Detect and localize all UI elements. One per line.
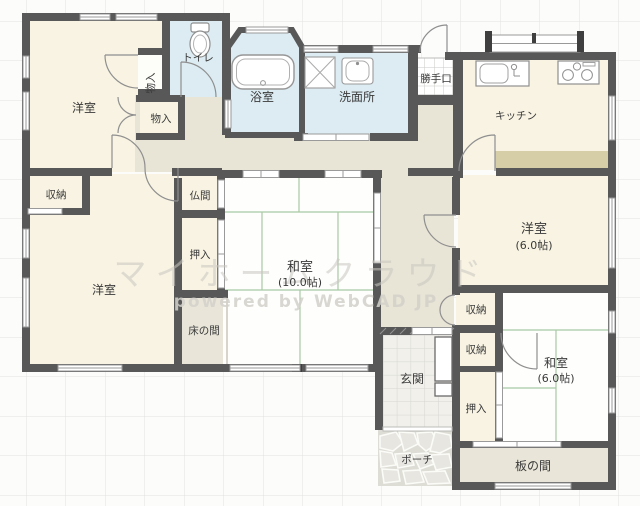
label-itanoma: 板の間: [515, 459, 551, 473]
label-washitsu10: 和室: [287, 259, 313, 275]
label-yoshitsu-right: 洋室: [521, 221, 547, 237]
label-washitsu6-size: (6.0帖): [537, 372, 574, 385]
watermark-line2: powered by WebCAD JP: [174, 292, 439, 312]
label-bath: 浴室: [250, 89, 274, 104]
kitchen-sink-icon: [476, 61, 529, 86]
label-toilet: トイレ: [182, 52, 214, 64]
label-oshiire-left: 押入: [190, 248, 211, 261]
label-kitchen: キッチン: [495, 110, 537, 122]
wash-basin-icon: [342, 58, 373, 84]
label-shuno-r1: 収納: [466, 303, 487, 316]
label-tokonoma: 床の間: [188, 324, 220, 337]
label-butsuma: 仏間: [190, 190, 211, 202]
bathtub-icon: [232, 55, 294, 89]
stove-icon: [558, 61, 599, 84]
washing-machine-icon: [305, 57, 335, 88]
label-washitsu6: 和室: [544, 355, 568, 370]
label-oshiire-right: 押入: [466, 402, 487, 415]
label-yoshitsu-right-size: (6.0帖): [515, 239, 552, 252]
label-washitsu10-size: (10.0帖): [278, 276, 322, 289]
label-yoshitsu-top-left: 洋室: [72, 100, 96, 115]
label-katteguchi: 勝手口: [420, 72, 452, 85]
label-monoire-vertical: 物入: [144, 72, 157, 93]
label-yoshitsu-bottom-left: 洋室: [92, 282, 116, 297]
kitchen-counter: [495, 151, 608, 169]
label-monoire: 物入: [151, 112, 172, 125]
label-genkan: 玄関: [400, 371, 424, 386]
label-porch: ポーチ: [401, 454, 433, 466]
label-senmenjo: 洗面所: [339, 90, 375, 104]
shoe-cabinet: [435, 337, 452, 396]
floor-plan-svg: マイホームクラウド powered by WebCAD JP 洋室 物入 物入 …: [0, 0, 640, 506]
label-shuno-left: 収納: [46, 188, 67, 201]
label-shuno-r2: 収納: [466, 343, 487, 356]
floor-plan-screenshot: マイホームクラウド powered by WebCAD JP 洋室 物入 物入 …: [0, 0, 640, 506]
